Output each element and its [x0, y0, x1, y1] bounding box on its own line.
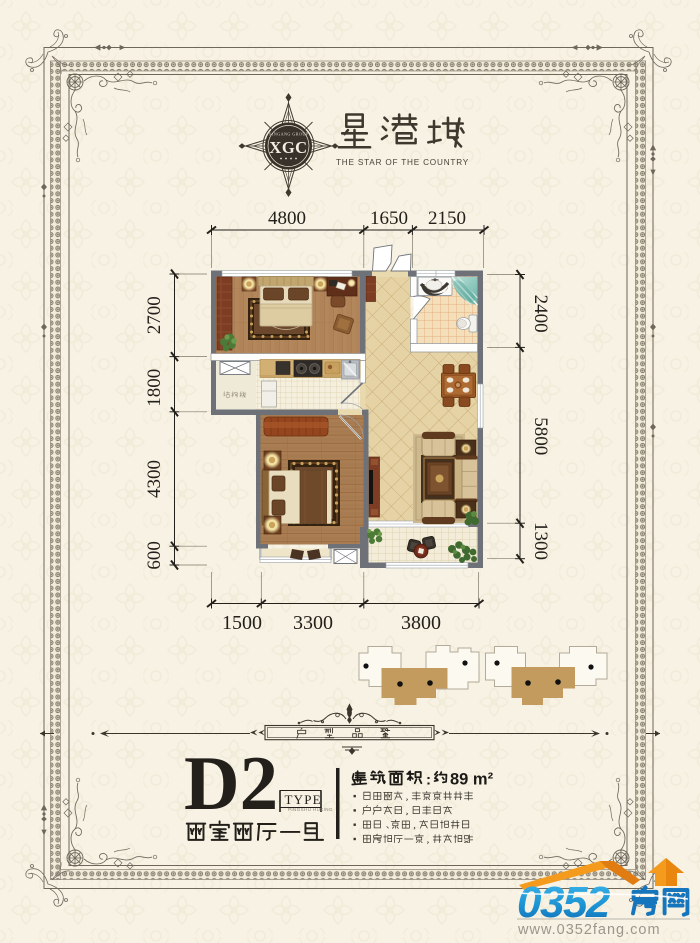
- svg-text:4300: 4300: [144, 460, 165, 498]
- svg-text:4800: 4800: [268, 208, 306, 229]
- svg-text:TYPE: TYPE: [285, 792, 322, 807]
- svg-text:1650: 1650: [370, 208, 408, 229]
- svg-text:D2: D2: [184, 740, 278, 826]
- svg-text:600: 600: [144, 541, 165, 570]
- svg-text:1800: 1800: [144, 369, 165, 407]
- svg-text:0352: 0352: [517, 878, 611, 927]
- svg-text:2700: 2700: [144, 296, 165, 334]
- svg-text:3300: 3300: [293, 612, 333, 634]
- svg-text:5800: 5800: [530, 417, 551, 455]
- svg-text:2150: 2150: [428, 208, 466, 229]
- svg-text::: :: [426, 772, 431, 789]
- svg-text:XGC: XGC: [269, 138, 307, 157]
- svg-text:XINGANG GROUP: XINGANG GROUP: [269, 132, 309, 137]
- svg-text:PINGSHU HUXING: PINGSHU HUXING: [288, 807, 333, 812]
- svg-text:89 m²: 89 m²: [450, 771, 494, 789]
- svg-text:www.0352fang.com: www.0352fang.com: [517, 922, 661, 938]
- svg-text:2400: 2400: [530, 295, 551, 333]
- svg-text:THE STAR OF THE COUNTRY: THE STAR OF THE COUNTRY: [336, 158, 469, 167]
- svg-text:1300: 1300: [530, 522, 551, 560]
- svg-text:3800: 3800: [401, 612, 441, 634]
- svg-text:1500: 1500: [222, 612, 262, 634]
